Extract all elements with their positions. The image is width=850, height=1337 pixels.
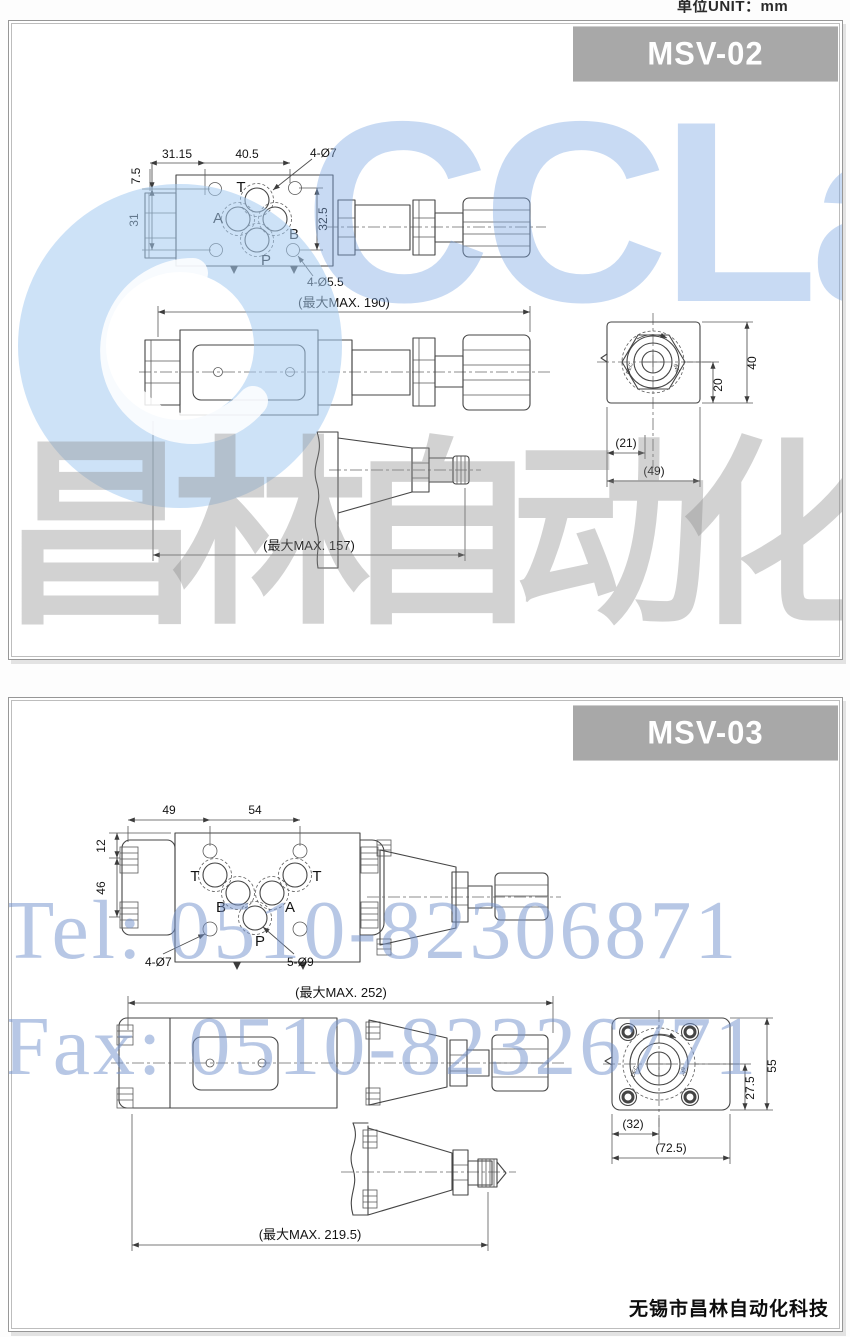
panel-msv02: MSV-02 T A B P 31.15 40.5 [8, 20, 843, 660]
msv03-detail-view: (最大MAX. 219.5) [132, 1114, 516, 1251]
msv02-drawing: T A B P 31.15 40.5 7.5 31 32.5 4-Ø7 4-Ø5… [11, 23, 838, 653]
dec-mark: DEC [630, 1065, 639, 1078]
msv03-plan-view: T B A T P 49 54 12 46 4-Ø7 5-Ø9 [94, 803, 384, 970]
dim-label: (32) [622, 1117, 643, 1131]
msv02-side-view [139, 330, 551, 415]
dim-label: 20 [711, 378, 725, 392]
port-label-t1: T [190, 868, 199, 885]
dim-label: 31.15 [162, 147, 192, 161]
hole-callout: 5-Ø9 [287, 955, 314, 969]
dim-label: 54 [248, 803, 262, 817]
dim-label: (最大MAX. 252) [295, 985, 387, 1000]
dim-label: 49 [162, 803, 176, 817]
model-banner-msv03: MSV-03 [573, 705, 838, 760]
dim-label: 31 [127, 213, 141, 227]
msv02-side-projection [326, 198, 546, 257]
footer-company: 无锡市昌林自动化科技 [629, 1294, 829, 1321]
unit-label: 单位UNIT：mm [677, 0, 788, 16]
msv02-total-length-dim: (最大MAX. 190) [158, 295, 530, 337]
dim-label: (49) [643, 464, 664, 478]
port-label-b: B [289, 226, 299, 243]
panel-msv03: MSV-03 T [8, 697, 843, 1332]
dim-label: 12 [94, 839, 108, 853]
msv02-plan-view: T A B P 31.15 40.5 7.5 31 32.5 4-Ø7 4-Ø5… [127, 146, 344, 289]
msv02-detail-view: (最大MAX. 157) [153, 421, 481, 568]
port-label-p: P [255, 933, 265, 950]
msv03-total-length-dim: (最大MAX. 252) [128, 985, 553, 1033]
dim-label: 40 [745, 356, 759, 370]
hole-callout: 4-Ø7 [310, 146, 337, 160]
dim-label: (最大MAX. 157) [263, 538, 355, 553]
port-label-a: A [285, 899, 295, 916]
dim-label: (最大MAX. 190) [298, 295, 390, 310]
msv03-side-projection [367, 840, 561, 955]
dim-label: (最大MAX. 219.5) [259, 1227, 362, 1242]
port-label-a: A [213, 210, 223, 227]
model-banner-msv02: MSV-02 [573, 26, 838, 81]
inc-mark: INC [679, 1066, 688, 1077]
dim-label: (72.5) [655, 1141, 686, 1155]
msv03-side-view [111, 1018, 566, 1108]
msv03-end-view: DEC INC 27.5 55 (32) (72.5) [603, 1010, 779, 1164]
dim-label: 55 [765, 1059, 779, 1073]
hole-callout: 4-Ø5.5 [307, 275, 344, 289]
port-label-b: B [216, 899, 226, 916]
dim-label: 27.5 [743, 1076, 757, 1100]
dim-label: 7.5 [129, 167, 143, 184]
datasheet-page: { "header": { "unit_label": "单位UNIT：mm" … [0, 0, 850, 1337]
msv02-end-view: DEC INC 20 40 (21) (49) [597, 313, 759, 487]
hole-callout: 4-Ø7 [145, 955, 172, 969]
dim-label: 40.5 [235, 147, 259, 161]
dim-label: (21) [615, 436, 636, 450]
msv03-drawing: T B A T P 49 54 12 46 4-Ø7 5-Ø9 [11, 700, 838, 1327]
port-label-t: T [236, 179, 245, 196]
dim-label: 46 [94, 881, 108, 895]
port-label-t2: T [312, 868, 321, 885]
port-label-p: P [261, 252, 271, 269]
